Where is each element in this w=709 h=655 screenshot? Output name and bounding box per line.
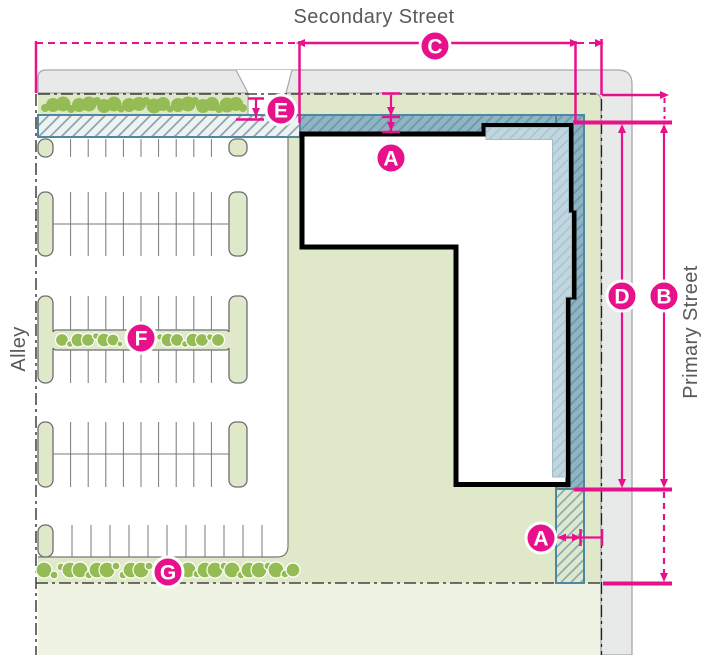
marker-letter-g: G: [160, 562, 176, 585]
parking-island: [229, 192, 247, 256]
parking-island: [229, 139, 247, 156]
site-plan-svg: CEAFDBAG Secondary Street Primary Street…: [0, 0, 709, 655]
marker-badge-g: G: [153, 557, 183, 587]
shrub: [117, 341, 123, 347]
parking-island: [38, 139, 53, 157]
parking-island: [38, 192, 53, 256]
shrub: [239, 104, 247, 112]
site-plan-diagram: CEAFDBAG Secondary Street Primary Street…: [0, 0, 709, 655]
marker-badge-b: B: [649, 281, 679, 311]
marker-letter-e: E: [274, 100, 288, 123]
marker-letter-a-bottom: A: [533, 528, 548, 551]
marker-letter-d: D: [614, 286, 629, 309]
marker-letter-a-top: A: [383, 148, 398, 171]
shrub: [286, 563, 300, 577]
shrub: [112, 562, 120, 570]
marker-badge-a-top: A: [376, 143, 406, 173]
alley-label: Alley: [8, 326, 30, 371]
primary-street-label: Primary Street: [680, 265, 702, 398]
parking-island: [38, 525, 53, 557]
shrub: [145, 562, 153, 570]
marker-badge-f: F: [126, 323, 156, 353]
marker-letter-b: B: [656, 286, 671, 309]
parking-island: [229, 422, 247, 487]
secondary-street-label: Secondary Street: [294, 6, 455, 28]
marker-badge-d: D: [607, 281, 637, 311]
marker-badge-c: C: [420, 31, 450, 61]
shrub: [50, 571, 58, 579]
marker-badge-e: E: [266, 95, 296, 125]
marker-badge-a-bottom: A: [526, 523, 556, 553]
marker-letter-f: F: [135, 328, 148, 351]
marker-letter-c: C: [427, 36, 442, 59]
shrub: [212, 334, 225, 347]
adjacent-parcel: [38, 583, 601, 655]
parking-island: [38, 422, 53, 487]
